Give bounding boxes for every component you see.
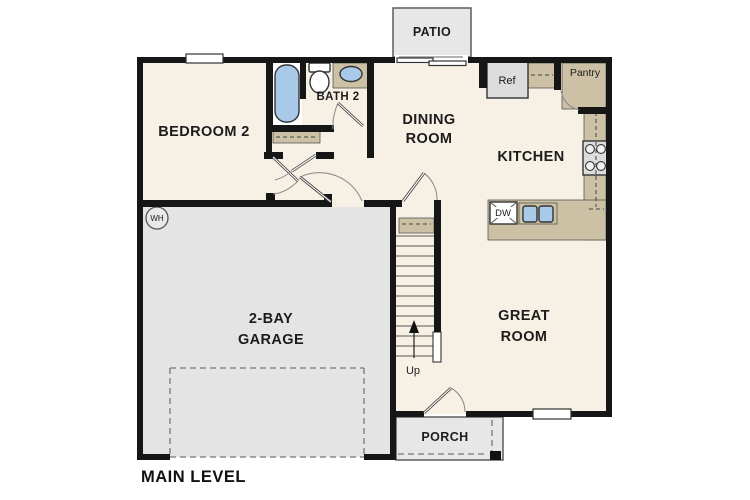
bath2-label: BATH 2 <box>316 91 359 103</box>
patio-label: PATIO <box>413 25 451 39</box>
great-room-window <box>533 409 571 419</box>
floor-plan: PATIO BEDROOM 2 BATH 2 DINING ROOM KITCH… <box>0 0 750 500</box>
bath-vanity-sink <box>333 63 370 88</box>
hall-closet-shelf <box>273 131 320 143</box>
dining-label-line2: ROOM <box>406 131 453 147</box>
refrigerator-label: Ref <box>498 75 516 87</box>
floor-plan-canvas: PATIO BEDROOM 2 BATH 2 DINING ROOM KITCH… <box>0 0 750 500</box>
garage-label-line1: 2-BAY <box>249 311 293 327</box>
bathtub <box>272 63 302 125</box>
great-room-label-line1: GREAT <box>498 308 550 324</box>
porch-label: PORCH <box>421 430 468 444</box>
dining-label-line1: DINING <box>402 112 455 128</box>
dishwasher-label: DW <box>495 208 511 219</box>
garage-label-line2: GARAGE <box>238 332 304 348</box>
stair-railing <box>433 332 441 362</box>
porch-post <box>490 451 501 460</box>
toilet <box>309 63 330 93</box>
kitchen-label: KITCHEN <box>497 149 564 165</box>
bedroom-window <box>186 54 223 63</box>
stove <box>583 141 608 175</box>
level-title: MAIN LEVEL <box>141 468 246 486</box>
pantry-label: Pantry <box>570 67 601 79</box>
bedroom2-label: BEDROOM 2 <box>158 124 249 140</box>
patio-sliding-door <box>395 55 468 66</box>
coat-closet-shelf <box>399 218 434 233</box>
great-room-label-line2: ROOM <box>501 329 548 345</box>
water-heater-label: WH <box>150 214 164 223</box>
stairs-up-label: Up <box>406 365 420 377</box>
kitchen-sink <box>519 203 557 224</box>
